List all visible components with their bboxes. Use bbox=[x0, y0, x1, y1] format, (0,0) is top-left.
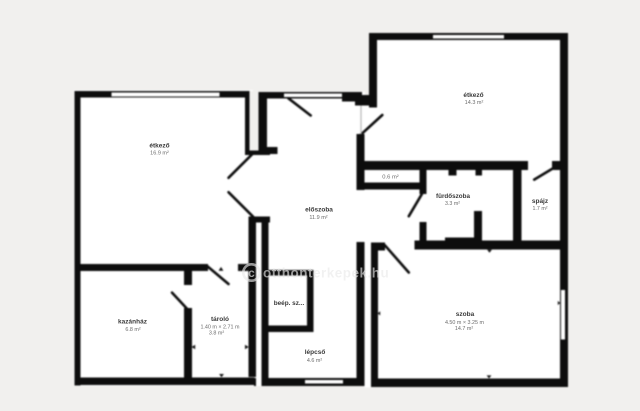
svg-text:kazánház: kazánház bbox=[118, 319, 148, 326]
svg-text:tároló: tároló bbox=[211, 316, 229, 323]
svg-text:1.40 m × 2.71 m: 1.40 m × 2.71 m bbox=[200, 324, 240, 330]
svg-text:3.8 m²: 3.8 m² bbox=[209, 331, 224, 337]
svg-text:beép. sz...: beép. sz... bbox=[274, 300, 305, 307]
svg-text:spájz: spájz bbox=[532, 198, 549, 205]
svg-text:14.7 m²: 14.7 m² bbox=[455, 326, 473, 332]
svg-text:szoba: szoba bbox=[456, 311, 475, 318]
svg-text:0.6 m²: 0.6 m² bbox=[382, 175, 398, 181]
svg-text:16.9 m²: 16.9 m² bbox=[150, 151, 169, 157]
svg-text:6.8 m²: 6.8 m² bbox=[125, 327, 140, 333]
svg-text:fürdőszoba: fürdőszoba bbox=[436, 193, 470, 200]
svg-text:4.50 m × 3.25 m: 4.50 m × 3.25 m bbox=[445, 320, 485, 326]
svg-text:14.3 m²: 14.3 m² bbox=[465, 100, 484, 106]
svg-text:étkező: étkező bbox=[463, 92, 483, 99]
svg-text:3.3 m²: 3.3 m² bbox=[445, 201, 460, 207]
svg-text:lépcső: lépcső bbox=[305, 349, 326, 356]
svg-text:1.7 m²: 1.7 m² bbox=[532, 206, 547, 212]
svg-text:11.9 m²: 11.9 m² bbox=[309, 215, 327, 221]
svg-text:4.6 m²: 4.6 m² bbox=[307, 358, 322, 364]
svg-text:előszoba: előszoba bbox=[305, 207, 333, 214]
svg-text:étkező: étkező bbox=[149, 143, 169, 150]
